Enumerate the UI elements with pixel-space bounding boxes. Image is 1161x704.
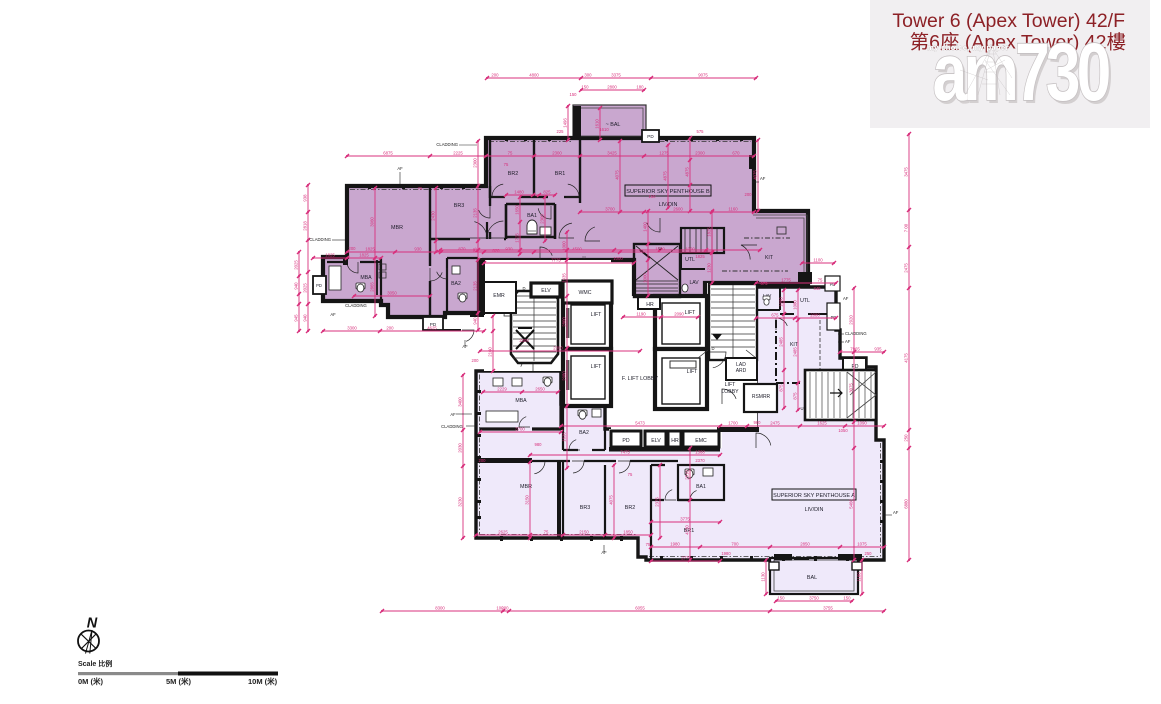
svg-text:1368: 1368 (695, 450, 705, 455)
svg-text:4500: 4500 (572, 247, 582, 252)
svg-text:MBA: MBA (360, 275, 372, 281)
svg-text:180: 180 (636, 85, 644, 90)
svg-text:3375: 3375 (611, 73, 621, 78)
svg-text:6880: 6880 (904, 499, 909, 509)
svg-text:2475: 2475 (770, 421, 780, 426)
svg-text:3050: 3050 (387, 291, 397, 296)
svg-text:HR: HR (671, 438, 679, 444)
svg-text:75: 75 (504, 162, 509, 167)
svg-text:SUPERIOR SKY PENTHOUSE A: SUPERIOR SKY PENTHOUSE A (773, 493, 855, 499)
svg-text:PD: PD (647, 134, 654, 139)
svg-text:1725: 1725 (515, 233, 520, 243)
svg-text:4075: 4075 (615, 170, 620, 180)
svg-text:2160: 2160 (488, 347, 493, 357)
svg-text:875: 875 (793, 392, 798, 400)
svg-text:4075: 4075 (753, 170, 758, 180)
svg-text:1825: 1825 (325, 253, 335, 258)
svg-text:1050: 1050 (838, 428, 848, 433)
svg-text:BAL: BAL (807, 575, 817, 581)
svg-text:BR1: BR1 (555, 171, 566, 177)
svg-text:4625: 4625 (427, 326, 437, 331)
svg-text:938: 938 (303, 194, 308, 202)
svg-text:1850: 1850 (623, 530, 633, 535)
svg-text:150: 150 (649, 194, 657, 199)
svg-text:4800: 4800 (529, 73, 539, 78)
svg-text:1130: 1130 (761, 572, 766, 582)
svg-text:BR3: BR3 (580, 505, 591, 511)
svg-text:4075: 4075 (609, 495, 614, 505)
svg-text:CLADDING: CLADDING (441, 424, 463, 429)
svg-text:PD: PD (622, 438, 629, 444)
svg-text:225: 225 (557, 129, 565, 134)
svg-text:250: 250 (865, 551, 873, 556)
svg-text:930: 930 (414, 247, 422, 252)
svg-text:5473: 5473 (635, 421, 645, 426)
svg-text:2650: 2650 (535, 387, 545, 392)
svg-text:1000: 1000 (613, 256, 623, 261)
svg-text:1080: 1080 (779, 297, 784, 307)
svg-text:6055: 6055 (635, 606, 645, 611)
svg-text:LIFT: LIFT (591, 312, 602, 318)
svg-text:1160: 1160 (728, 207, 738, 212)
svg-text:2135: 2135 (473, 208, 478, 218)
svg-text:7 00: 7 00 (904, 223, 909, 232)
svg-text:1100: 1100 (857, 572, 862, 582)
svg-text:4730: 4730 (685, 525, 690, 535)
svg-text:75: 75 (646, 542, 651, 547)
svg-text:2850: 2850 (800, 542, 810, 547)
svg-text:200: 200 (479, 458, 487, 463)
svg-text:150: 150 (570, 92, 578, 97)
svg-text:200: 200 (472, 358, 480, 363)
svg-text:4175: 4175 (904, 353, 909, 363)
svg-text:820: 820 (493, 248, 501, 253)
svg-text:3960: 3960 (370, 217, 375, 227)
svg-text:3425: 3425 (607, 151, 617, 156)
svg-text:1700: 1700 (728, 421, 738, 426)
svg-text:1980: 1980 (721, 551, 731, 556)
svg-text:ELV: ELV (651, 438, 661, 444)
svg-text:am730: am730 (932, 27, 1109, 118)
svg-text:2300: 2300 (553, 346, 563, 351)
svg-text:2229: 2229 (497, 387, 507, 392)
svg-text:BR2: BR2 (508, 171, 519, 177)
svg-text:1080: 1080 (793, 300, 798, 310)
svg-text:6875: 6875 (383, 151, 393, 156)
svg-text:2475: 2475 (904, 263, 909, 273)
svg-text:1650: 1650 (515, 205, 520, 215)
svg-text:1000: 1000 (685, 247, 695, 252)
svg-text:AF: AF (845, 339, 851, 344)
svg-text:LAV: LAV (689, 280, 699, 286)
svg-text:300: 300 (584, 73, 592, 78)
svg-text:2430: 2430 (431, 211, 436, 221)
svg-text:WMC: WMC (579, 290, 592, 296)
svg-text:8300: 8300 (435, 606, 445, 611)
svg-text:F. LIFT LOBBY: F. LIFT LOBBY (622, 376, 659, 382)
svg-text:UTL: UTL (800, 298, 810, 304)
svg-text:CLADDING: CLADDING (309, 237, 331, 242)
svg-text:MBA: MBA (515, 398, 527, 404)
svg-text:EMC: EMC (695, 438, 707, 444)
svg-text:150: 150 (843, 596, 851, 601)
svg-text:75: 75 (544, 530, 549, 535)
svg-text:3700: 3700 (515, 427, 525, 432)
svg-text:U: U (658, 246, 661, 251)
svg-text:75: 75 (818, 278, 823, 283)
svg-text:2775: 2775 (681, 556, 691, 561)
svg-text:3300: 3300 (347, 326, 357, 331)
svg-text:CLADDING: CLADDING (845, 331, 867, 336)
svg-text:340: 340 (814, 286, 822, 291)
svg-text:3775: 3775 (680, 517, 690, 522)
svg-text:LIV/DIN: LIV/DIN (805, 507, 824, 513)
svg-text:940: 940 (473, 317, 478, 325)
svg-text:200: 200 (501, 606, 509, 611)
svg-text:2025: 2025 (303, 283, 308, 293)
svg-text:7475: 7475 (620, 450, 630, 455)
svg-text:LIFT: LIFT (725, 382, 736, 388)
svg-text:675: 675 (771, 313, 779, 318)
svg-text:1825: 1825 (707, 227, 712, 237)
svg-text:875: 875 (779, 384, 784, 392)
svg-text:3700: 3700 (605, 207, 615, 212)
svg-text:575: 575 (697, 129, 705, 134)
svg-text:LIFT: LIFT (685, 310, 696, 316)
svg-text:LIFT: LIFT (591, 364, 602, 370)
svg-text:75: 75 (418, 186, 423, 191)
svg-text:1230: 1230 (707, 263, 712, 273)
svg-text:BA2: BA2 (579, 430, 589, 436)
svg-text:AF: AF (450, 412, 456, 417)
svg-text:200: 200 (349, 246, 357, 251)
svg-text:2600: 2600 (673, 207, 683, 212)
svg-text:BR3: BR3 (454, 203, 465, 209)
svg-text:150: 150 (777, 596, 785, 601)
svg-text:AF: AF (893, 510, 899, 515)
svg-text:2080: 2080 (810, 313, 820, 318)
svg-text:2980: 2980 (562, 371, 567, 381)
svg-text:930: 930 (505, 247, 513, 252)
svg-text:2030: 2030 (458, 443, 463, 453)
svg-text:2485: 2485 (779, 337, 784, 347)
svg-text:D: D (711, 346, 714, 351)
svg-text:2090: 2090 (674, 312, 684, 317)
svg-text:1610: 1610 (599, 127, 609, 132)
svg-text:2225: 2225 (453, 151, 463, 156)
svg-text:940: 940 (294, 282, 299, 290)
svg-text:2025: 2025 (294, 260, 299, 270)
svg-text:AF: AF (760, 176, 766, 181)
svg-text:3150: 3150 (525, 495, 530, 505)
svg-text:EMR: EMR (493, 293, 505, 299)
svg-text:2865: 2865 (370, 282, 375, 292)
svg-text:940: 940 (303, 314, 308, 322)
svg-text:5466: 5466 (849, 499, 854, 509)
svg-text:670: 670 (732, 151, 740, 156)
svg-text:BR2: BR2 (625, 505, 636, 511)
svg-text:1000: 1000 (562, 241, 567, 251)
svg-text:1980: 1980 (670, 542, 680, 547)
svg-text:1090: 1090 (857, 421, 867, 426)
svg-text:2510: 2510 (685, 470, 690, 480)
svg-text:3475: 3475 (904, 167, 909, 177)
svg-text:1190: 1190 (636, 312, 646, 317)
svg-text:3075: 3075 (849, 383, 854, 393)
svg-text:1075: 1075 (857, 542, 867, 547)
svg-text:200: 200 (491, 73, 499, 78)
svg-text:1000: 1000 (643, 273, 648, 283)
svg-text:LOBBY: LOBBY (721, 389, 739, 395)
svg-text:U: U (582, 255, 585, 260)
svg-text:AF: AF (843, 296, 849, 301)
svg-text:825: 825 (543, 190, 551, 195)
svg-text:1825: 1825 (365, 247, 375, 252)
svg-text:N: N (87, 616, 98, 632)
svg-text:BA1: BA1 (527, 213, 537, 219)
svg-text:1480: 1480 (514, 190, 524, 195)
svg-text:250: 250 (904, 434, 909, 442)
svg-text:2370: 2370 (695, 458, 705, 463)
svg-text:RSMRR: RSMRR (752, 394, 771, 400)
svg-text:2300: 2300 (695, 151, 705, 156)
svg-text:4875: 4875 (663, 171, 668, 181)
svg-text:700: 700 (731, 542, 739, 547)
svg-text:D: D (522, 286, 525, 291)
svg-text:2818: 2818 (303, 221, 308, 231)
svg-text:BA1: BA1 (696, 484, 706, 490)
svg-text:3400: 3400 (458, 397, 463, 407)
svg-text:KIT: KIT (765, 255, 774, 261)
svg-text:870: 870 (458, 247, 466, 252)
svg-text:4875: 4875 (685, 167, 690, 177)
svg-text:2135: 2135 (473, 281, 478, 291)
svg-text:KIT: KIT (790, 342, 799, 348)
svg-text:945: 945 (294, 314, 299, 322)
svg-text:200: 200 (386, 326, 394, 331)
svg-text:935: 935 (874, 347, 882, 352)
svg-text:2300: 2300 (540, 214, 545, 224)
svg-text:1400: 1400 (643, 222, 648, 232)
svg-text:0M (米): 0M (米) (78, 676, 103, 686)
svg-text:2625: 2625 (498, 530, 508, 535)
svg-text:675: 675 (761, 281, 769, 286)
svg-text:2300: 2300 (519, 338, 529, 343)
svg-text:2375: 2375 (655, 497, 660, 507)
svg-text:1496: 1496 (563, 118, 568, 128)
svg-text:2300: 2300 (473, 158, 478, 168)
svg-text:CLADDING: CLADDING (436, 142, 458, 147)
svg-text:AF: AF (397, 166, 403, 171)
svg-text:1775: 1775 (781, 278, 791, 283)
svg-text:3750: 3750 (809, 596, 819, 601)
svg-text:PD: PD (316, 283, 322, 288)
svg-text:MBR: MBR (391, 225, 403, 231)
svg-text:ARD: ARD (736, 368, 747, 374)
svg-text:1100: 1100 (813, 258, 823, 263)
svg-text:1825: 1825 (359, 253, 369, 258)
svg-text:Scale 比例: Scale 比例 (78, 659, 112, 668)
svg-text:1825: 1825 (695, 254, 705, 259)
svg-text:5M (米): 5M (米) (166, 676, 191, 686)
svg-text:200: 200 (745, 192, 753, 197)
svg-text:2150: 2150 (579, 530, 589, 535)
svg-text:HR: HR (646, 302, 654, 308)
svg-text:2920: 2920 (849, 315, 854, 325)
svg-text:3230: 3230 (458, 497, 463, 507)
svg-text:75: 75 (628, 472, 633, 477)
svg-text:2485: 2485 (793, 347, 798, 357)
svg-text:ELV: ELV (541, 288, 551, 294)
svg-text:my choice, my paper: my choice, my paper (927, 43, 1009, 52)
svg-text:AF: AF (330, 312, 336, 317)
svg-text:1635: 1635 (562, 432, 567, 442)
svg-text:1935: 1935 (562, 273, 567, 283)
svg-text:10M (米): 10M (米) (248, 676, 278, 686)
svg-text:960: 960 (754, 420, 762, 425)
svg-text:75: 75 (508, 151, 513, 156)
svg-text:2800: 2800 (607, 85, 617, 90)
svg-text:2800: 2800 (562, 317, 567, 327)
svg-text:LIFT: LIFT (687, 369, 698, 375)
svg-text:3755: 3755 (823, 606, 833, 611)
svg-text:150: 150 (581, 85, 589, 90)
svg-text:BA2: BA2 (451, 281, 461, 287)
svg-text:2300: 2300 (552, 151, 562, 156)
svg-text:UTL: UTL (685, 257, 695, 263)
svg-text:9075: 9075 (698, 73, 708, 78)
svg-text:1625: 1625 (817, 421, 827, 426)
svg-text:CLADDING: CLADDING (345, 303, 367, 308)
svg-text:980: 980 (535, 442, 543, 447)
svg-text:7775: 7775 (551, 258, 561, 263)
svg-text:U: U (800, 406, 803, 411)
